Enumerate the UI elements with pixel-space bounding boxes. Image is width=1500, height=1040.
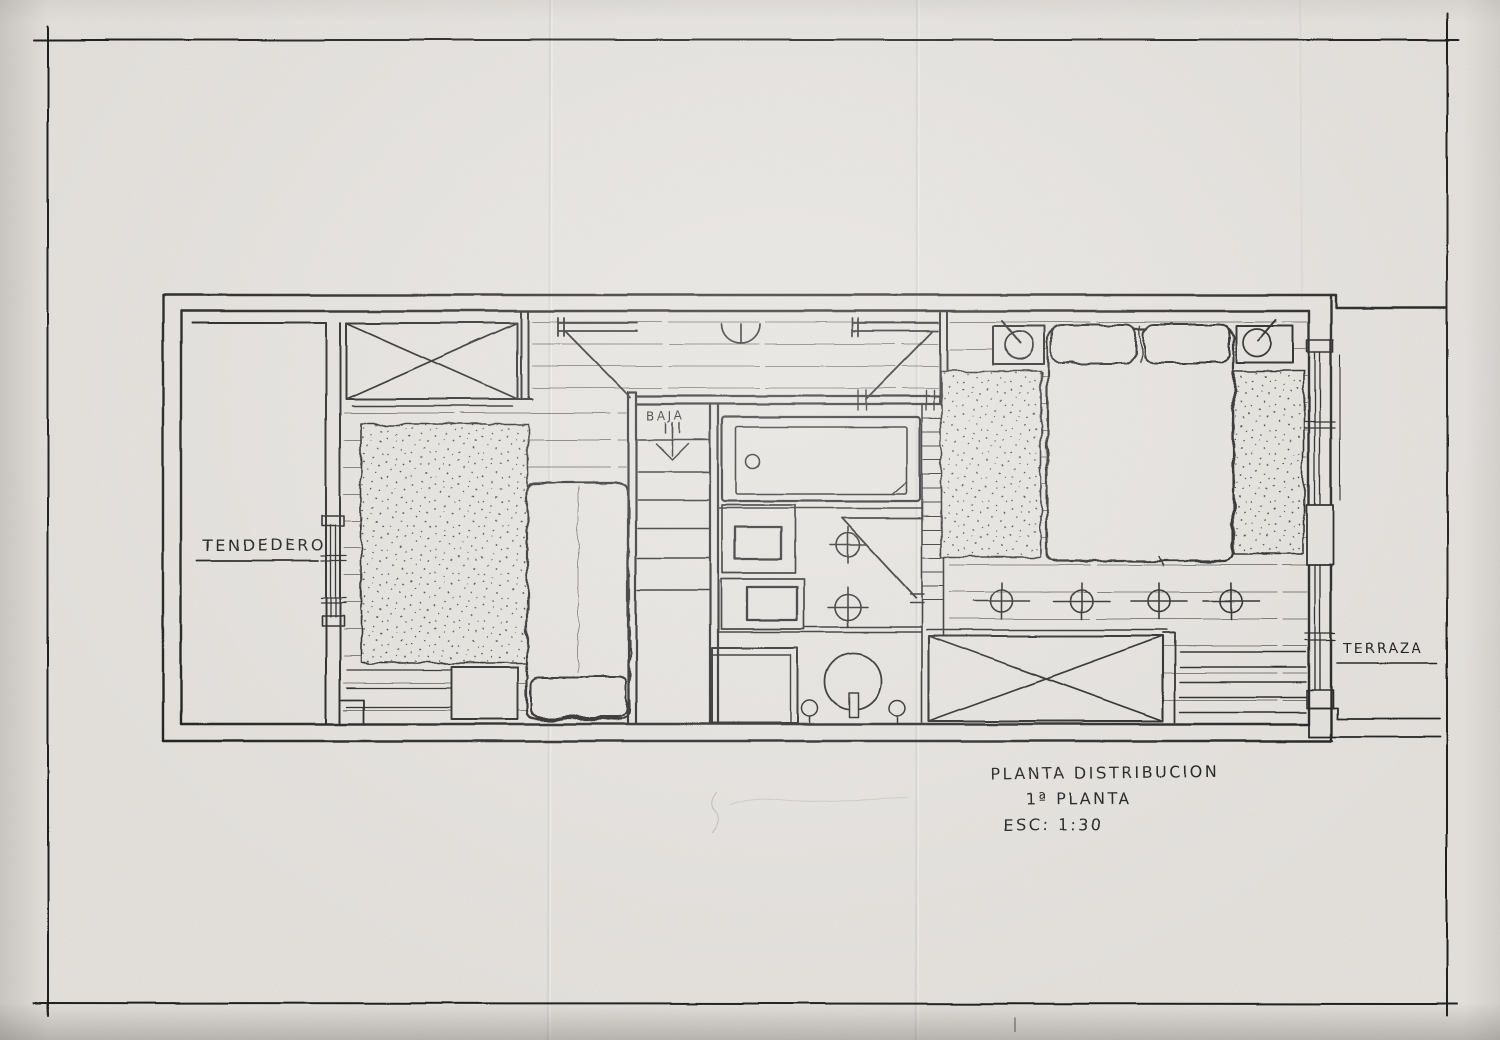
floor-plan-sketch: TENDEDERO — [0, 0, 1500, 1040]
drawing-sheet: TENDEDERO — [0, 0, 1500, 1040]
paper-grain — [0, 0, 1500, 1040]
